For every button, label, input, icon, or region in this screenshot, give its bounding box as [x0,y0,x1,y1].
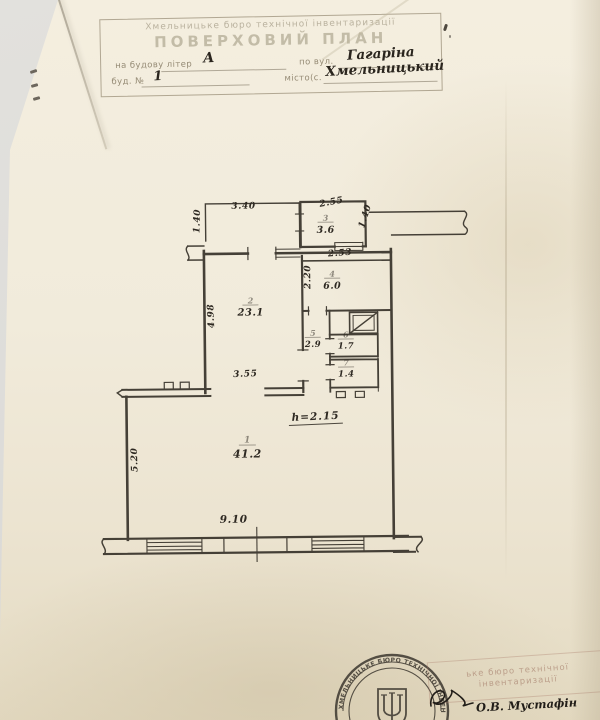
room-label-wc: 6 1.7 [338,331,355,351]
trident-icon [378,689,406,720]
signature-flourish-icon [428,686,474,712]
dim-room1-width: 9.10 [220,514,248,526]
dim-balcony-width: 3.40 [231,201,255,211]
dim-entry-depth: 1.40 [357,203,374,229]
dim-kitchen-depth: 2.20 [303,265,313,289]
ceiling-height-note: h=2.15 [288,410,343,426]
signature: О.В. Мустафін [428,686,600,712]
room-label-bath: 7 1.4 [338,359,355,379]
dim-room2-width: 3.55 [233,369,258,380]
plan-labels: 3.40 1.40 2.55 1.40 2.53 2.20 4.98 3.55 … [0,0,600,720]
paper-crease [505,80,507,580]
dim-room1-depth: 5.20 [130,447,141,472]
dim-balcony-depth: 1.40 [192,209,203,234]
room-label-corridor: 5 2.9 [305,330,322,350]
dim-room2-depth: 4.98 [206,304,217,329]
document-photo: Хмельницьке бюро технічної інвентаризаці… [0,0,600,720]
paper-sheet: Хмельницьке бюро технічної інвентаризаці… [0,0,600,720]
signature-name: О.В. Мустафін [476,695,578,714]
room-label-room1: 1 41.2 [233,437,262,460]
room-label-entry: 3 3.6 [316,215,334,236]
paper-speck [449,35,451,38]
dim-kitchen-width: 2.53 [328,248,353,260]
dim-entry-width: 2.55 [319,196,345,210]
room-label-kitchen: 4 6.0 [323,271,341,292]
room-label-room2: 2 23.1 [237,297,264,318]
